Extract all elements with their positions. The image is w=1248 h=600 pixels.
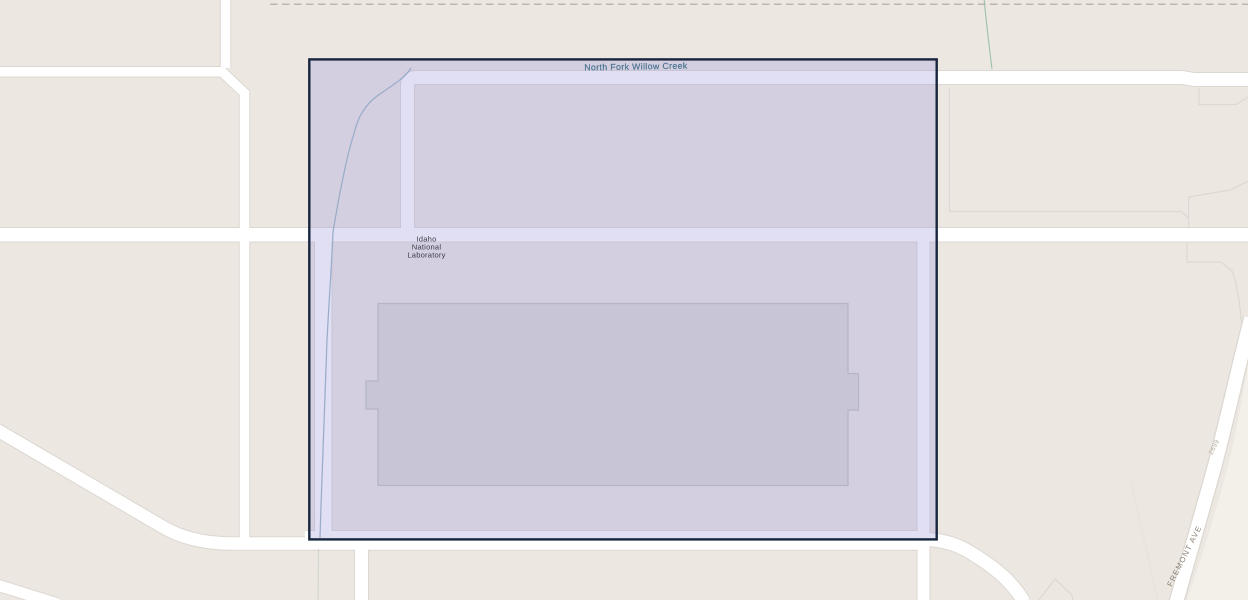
svg-text:North Fork Willow Creek: North Fork Willow Creek xyxy=(584,61,688,73)
svg-text:Laboratory: Laboratory xyxy=(407,251,445,260)
